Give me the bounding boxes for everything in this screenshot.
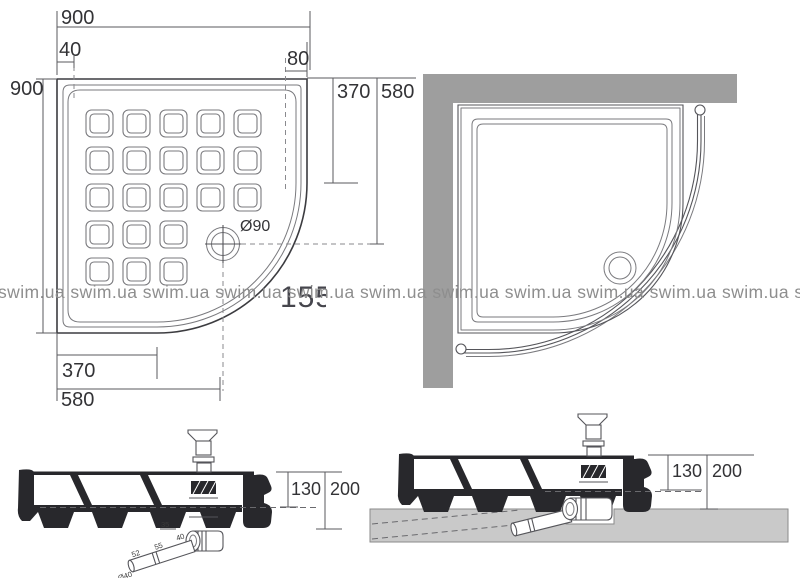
anti-slip-square	[201, 151, 220, 170]
watermark-text: swim.ua	[650, 282, 717, 303]
anti-slip-square	[127, 225, 146, 244]
dim-bottom-to-arc: 370	[62, 360, 95, 382]
door-track-outermost-arc	[466, 116, 705, 357]
anti-slip-square	[201, 114, 220, 133]
dim-right-to-arc: 370	[337, 81, 370, 103]
anti-slip-square	[164, 225, 183, 244]
watermark-text: swim.ua	[432, 282, 499, 303]
trap-dim-c-label: 35	[161, 520, 169, 529]
installed-dim-tray-depth: 130	[672, 461, 702, 481]
watermark-text: swim.ua	[143, 282, 210, 303]
watermark-text: swim.ua	[70, 282, 137, 303]
wall-vertical	[423, 74, 453, 388]
installed-drain-inner	[609, 257, 631, 279]
trap-dim-d-label: 40	[175, 532, 186, 543]
dim-top-extensions	[57, 11, 310, 75]
dim-tray-depth: 130	[291, 479, 321, 499]
anti-slip-square	[90, 114, 109, 133]
anti-slip-square	[90, 188, 109, 207]
installed-tray-cross-section	[398, 453, 652, 512]
drain-crosshair	[205, 225, 241, 263]
anti-slip-grid	[86, 110, 261, 285]
anti-slip-square	[90, 151, 109, 170]
watermark-text: swim.ua	[577, 282, 644, 303]
dim-total-height: 200	[330, 479, 360, 499]
door-knob-top	[695, 105, 705, 115]
anti-slip-square	[127, 151, 146, 170]
section-view-installed: 130 200	[370, 414, 788, 542]
anti-slip-square	[164, 188, 183, 207]
installed-dim-total-height: 200	[712, 461, 742, 481]
anti-slip-square	[164, 151, 183, 170]
dim-bottom-to-drain: 580	[61, 389, 94, 411]
watermark-text: swim.ua	[360, 282, 427, 303]
anti-slip-square	[238, 151, 257, 170]
dim-edge-offset: 80	[287, 48, 309, 70]
door-knob-bottom	[456, 344, 466, 354]
watermark-text: swim.ua	[215, 282, 282, 303]
anti-slip-square	[90, 225, 109, 244]
dim-left-height: 900	[10, 78, 43, 100]
installed-drain-assembly	[578, 414, 608, 482]
watermark-text: swim.ua	[288, 282, 355, 303]
drain-flange-plate	[193, 457, 214, 462]
section-view-tray: 52 55 Ø40 35 40 130 200	[18, 430, 360, 578]
technical-drawing-page: Ø90 900 40 80 900 370 580 370 580	[0, 0, 800, 578]
anti-slip-square	[127, 114, 146, 133]
dim-right-to-drain: 580	[381, 81, 414, 103]
drain-body-upper	[197, 463, 211, 472]
drain-cap-stem	[196, 441, 211, 455]
anti-slip-square	[127, 188, 146, 207]
wall-horizontal	[423, 74, 737, 103]
drain-diameter-label: Ø90	[240, 218, 270, 235]
trap-outlet-label: Ø40	[117, 569, 133, 578]
dim-rim-offset: 40	[59, 39, 81, 61]
anti-slip-square	[238, 188, 257, 207]
installed-siphon-trap	[563, 498, 613, 520]
anti-slip-square	[127, 262, 146, 281]
anti-slip-square	[164, 114, 183, 133]
drain-cap	[188, 430, 217, 441]
watermark-text: swim.ua	[0, 282, 65, 303]
anti-slip-square	[164, 262, 183, 281]
anti-slip-square	[90, 262, 109, 281]
watermark-text: swim.ua	[794, 282, 800, 303]
tray-cross-section	[18, 469, 272, 528]
plan-view-tray: Ø90 900 40 80 900 370 580 370 580	[10, 7, 416, 411]
anti-slip-square	[238, 114, 257, 133]
anti-slip-square	[201, 188, 220, 207]
plan-view-installed	[423, 74, 737, 388]
drain-assembly-exploded	[188, 430, 218, 498]
dim-top-width: 900	[61, 7, 94, 29]
watermark-text: swim.ua	[722, 282, 789, 303]
watermark-text: swim.ua	[505, 282, 572, 303]
